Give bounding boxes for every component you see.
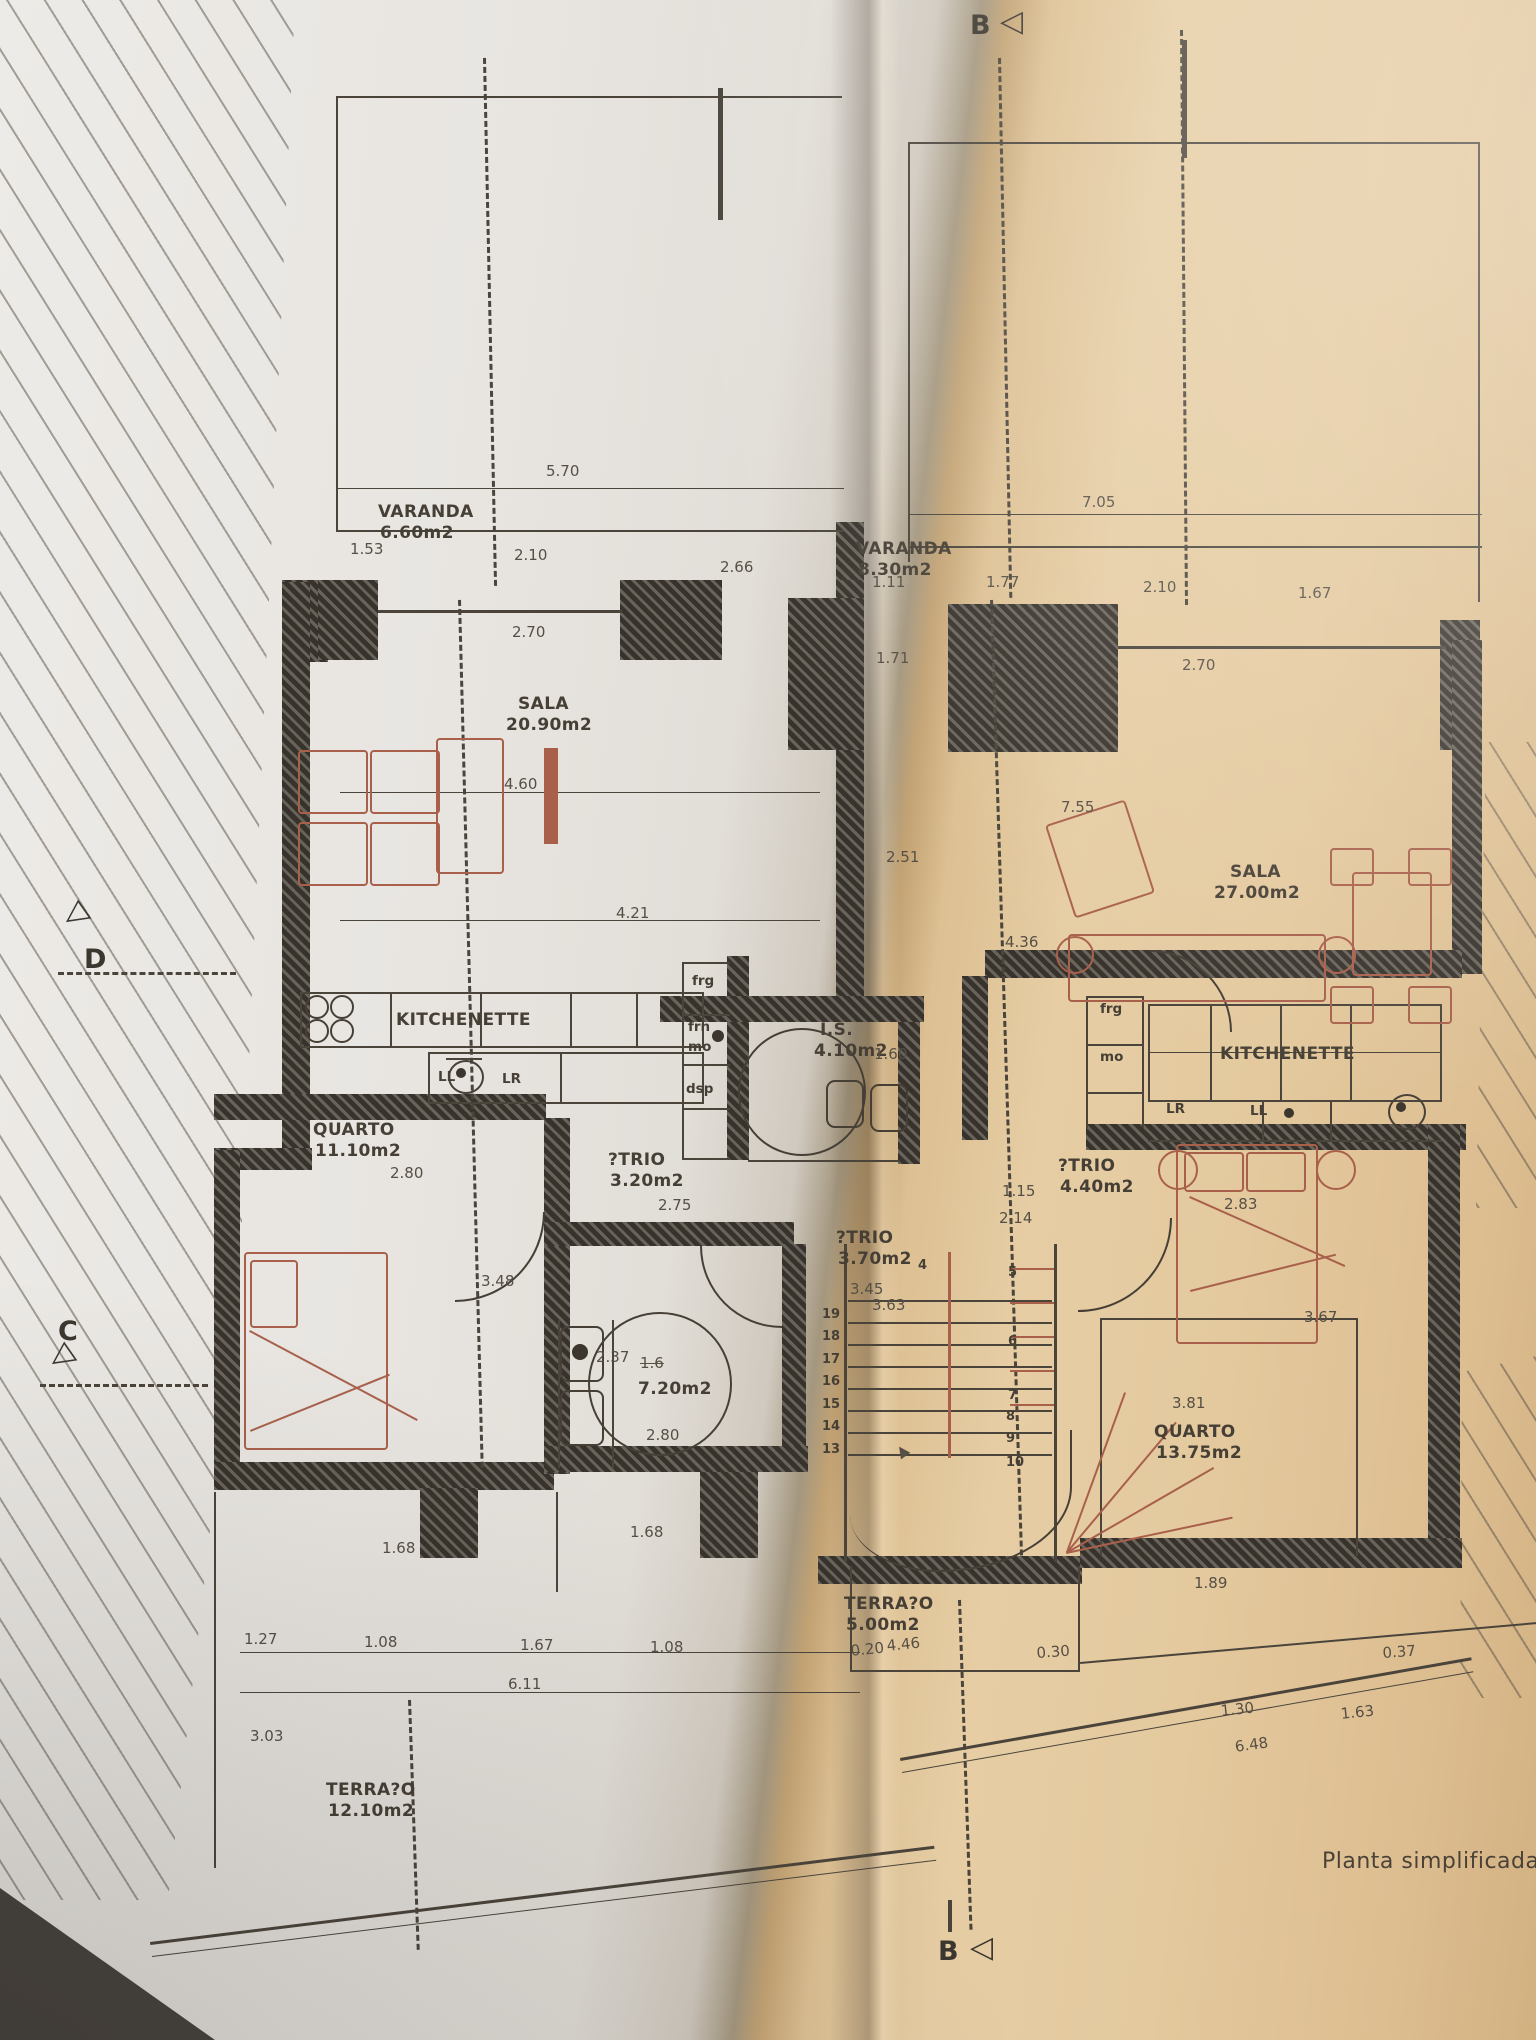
- dimension-label: 1.30: [1220, 1701, 1255, 1720]
- dimension-label: 1.60: [874, 1047, 907, 1063]
- chair-symbol: [1330, 848, 1374, 886]
- dimension-label: 6.11: [508, 1677, 541, 1693]
- room-label: VARANDA: [856, 541, 952, 559]
- plan-line: [1100, 1318, 1102, 1556]
- dimension-label: 1.89: [1194, 1576, 1227, 1592]
- stair-spoke-red: [1066, 1392, 1126, 1552]
- dimension-label: 4.21: [616, 906, 649, 922]
- plan-line: [1142, 996, 1144, 1128]
- appliance-label: frn: [688, 1020, 710, 1034]
- dimension-label: 2.37: [596, 1350, 629, 1366]
- toilet-symbol: [560, 1390, 604, 1446]
- dimension-label: 2.70: [512, 625, 545, 641]
- dimension-label: 1.53: [350, 542, 383, 558]
- tv-symbol: [544, 748, 558, 844]
- dimension-label: 6.48: [1234, 1735, 1269, 1755]
- dimension-label: 2.14: [999, 1211, 1032, 1227]
- stair-number: 19: [822, 1308, 840, 1322]
- wall-segment: [962, 976, 988, 1140]
- room-label: TERRA?O: [844, 1596, 934, 1614]
- plan-line: [1078, 1566, 1080, 1672]
- wall-segment: [214, 1462, 554, 1490]
- dimension-label: 5.70: [546, 464, 579, 480]
- section-flag-icon: ◁: [1000, 6, 1023, 38]
- sofa-arm: [1056, 936, 1094, 974]
- wall-segment: [948, 604, 1118, 752]
- room-label: KITCHENETTE: [1220, 1046, 1355, 1064]
- dimension-label: 2.51: [886, 850, 919, 866]
- plan-line: [908, 142, 910, 562]
- plan-line: [908, 514, 1482, 515]
- plan-line: [908, 142, 1480, 144]
- room-label: SALA: [1230, 864, 1281, 882]
- section-marker-d: D: [84, 946, 106, 974]
- room-area: 3.70m2: [838, 1251, 912, 1269]
- room-label: ?TRIO: [1058, 1158, 1115, 1176]
- dimension-label: 2.80: [646, 1428, 679, 1444]
- plan-line: [1148, 1140, 1442, 1142]
- plan-line: [850, 1670, 1080, 1672]
- floor-plan-photo: B ◁ B ◁ D ◁ C ◁ Planta simplificada d ▲V…: [0, 0, 1536, 2040]
- bed-post: [1316, 1150, 1356, 1190]
- section-line-c: [40, 1384, 208, 1387]
- appliance-label: mo: [1100, 1050, 1123, 1064]
- sink-symbol: [1388, 1094, 1426, 1130]
- dimension-label: 2.10: [1143, 580, 1176, 596]
- dimension-label: 3.67: [1304, 1310, 1337, 1326]
- sofa-symbol: [298, 822, 368, 886]
- plan-line: [748, 1160, 900, 1162]
- dimension-label: 1.67: [1298, 586, 1331, 602]
- section-marker-b-bottom: B: [938, 1938, 959, 1966]
- dimension-label: 2.83: [1224, 1197, 1257, 1213]
- plot-boundary-line: [900, 1657, 1472, 1761]
- wall-segment: [1080, 1538, 1462, 1568]
- room-area: 20.90m2: [506, 717, 592, 735]
- drain-dot: [1284, 1108, 1294, 1118]
- dimension-label: 3.81: [1172, 1396, 1205, 1412]
- stair-number: 4: [918, 1259, 927, 1273]
- wall-segment: [214, 1094, 546, 1120]
- dimension-label: 2.80: [390, 1166, 423, 1182]
- plot-boundary-line: [152, 1860, 936, 1957]
- section-line-b: [958, 1600, 973, 1930]
- wall-segment: [420, 1488, 478, 1558]
- dimension-label: 7.05: [1082, 495, 1115, 511]
- dimension-label: 4.60: [504, 777, 537, 793]
- stair-number: 8: [1006, 1410, 1015, 1424]
- room-label: VARANDA: [378, 504, 474, 522]
- appliance-label: frg: [692, 974, 714, 988]
- plot-boundary-line: [150, 1846, 934, 1945]
- dimension-label: 7.55: [1061, 800, 1094, 816]
- room-label: ?TRIO: [836, 1230, 893, 1248]
- plan-line: [556, 1492, 558, 1592]
- dimension-label: 1.15: [1002, 1184, 1035, 1200]
- drain-dot: [712, 1030, 724, 1042]
- plan-line: [240, 1692, 860, 1693]
- plan-line: [908, 546, 1482, 548]
- room-area: 5.00m2: [846, 1617, 920, 1635]
- dimension-label: 2.70: [1182, 658, 1215, 674]
- dimension-label: 4.36: [1005, 935, 1038, 951]
- appliance-label: dsp: [686, 1082, 713, 1096]
- plan-line: [682, 1064, 730, 1066]
- wall-segment: [700, 1472, 758, 1558]
- sofa-symbol: [298, 750, 368, 814]
- section-flag-icon: ◁: [970, 1932, 993, 1964]
- section-line-d: [58, 972, 236, 975]
- plan-line: [1118, 646, 1446, 649]
- room-area: 13.75m2: [1156, 1445, 1242, 1463]
- dimension-label: 1.08: [650, 1640, 683, 1656]
- plan-line: [390, 992, 392, 1048]
- room-label: I.S.: [820, 1022, 853, 1040]
- stair-tread-red: [1010, 1302, 1054, 1304]
- dimension-label: 2.66: [720, 560, 753, 576]
- chair-symbol: [1330, 986, 1374, 1024]
- stair-tread-red: [1010, 1404, 1054, 1406]
- plan-line: [428, 1102, 704, 1104]
- appliance-label: LL: [438, 1070, 455, 1084]
- dimension-label: 1.6: [640, 1356, 664, 1372]
- wall-segment: [788, 598, 864, 750]
- sofa-symbol: [370, 822, 440, 886]
- dimension-label: 1.08: [364, 1635, 397, 1651]
- plan-line: [1330, 1100, 1332, 1140]
- sofa-symbol: [1068, 934, 1326, 1002]
- dimension-label: 4.46: [886, 1636, 921, 1655]
- drawing-caption: Planta simplificada d: [1322, 1850, 1536, 1873]
- appliance-label: frg: [1100, 1002, 1122, 1016]
- plan-line: [1086, 1092, 1144, 1094]
- appliance-label: mo: [688, 1040, 711, 1054]
- appliance-label: LR: [502, 1072, 521, 1086]
- hob-burner-icon: [330, 995, 354, 1019]
- dimension-label: 2.10: [514, 548, 547, 564]
- stair-landing-curve: [850, 1430, 1072, 1572]
- table-symbol: [1352, 872, 1432, 976]
- stair-number: 14: [822, 1420, 840, 1434]
- toilet-symbol: [826, 1080, 864, 1128]
- armchair-symbol: [1045, 799, 1155, 918]
- dimension-label: 1.63: [1340, 1704, 1375, 1723]
- dimension-label: 2.75: [658, 1198, 691, 1214]
- plan-line: [1086, 1044, 1144, 1046]
- wall-segment: [727, 956, 749, 1160]
- sofa-symbol: [370, 750, 440, 814]
- room-area: 3.20m2: [610, 1173, 684, 1191]
- plan-line: [336, 488, 844, 489]
- dimension-label: 0.20: [850, 1641, 885, 1660]
- dimension-label: 3.63: [872, 1298, 905, 1314]
- dimension-label: 1.68: [630, 1525, 663, 1541]
- axis-dashed-line: [483, 58, 497, 586]
- plan-line: [428, 1052, 430, 1104]
- wall-segment: [318, 580, 378, 660]
- room-label: QUARTO: [313, 1122, 395, 1140]
- door-arc: [700, 1246, 782, 1328]
- appliance-label: LR: [1166, 1102, 1185, 1116]
- room-area: 11.10m2: [315, 1143, 401, 1161]
- plan-line: [948, 1900, 952, 1932]
- stair-tread-red: [1010, 1370, 1054, 1372]
- plan-line: [682, 1014, 730, 1016]
- stair-number: 7: [1008, 1389, 1017, 1403]
- plan-line: [682, 962, 684, 1160]
- plan-line: [682, 962, 730, 964]
- dimension-label: 3.48: [481, 1274, 514, 1290]
- section-line-b: [998, 58, 1012, 598]
- stair-number: 15: [822, 1398, 840, 1412]
- stair-stringer-red: [948, 1252, 951, 1458]
- plan-line: [336, 96, 338, 532]
- room-area: 7.20m2: [638, 1381, 712, 1399]
- plan-line: [340, 920, 820, 921]
- dimension-label: 1.77: [986, 575, 1019, 591]
- dimension-label: 1.27: [244, 1632, 277, 1648]
- dimension-label: 1.67: [520, 1638, 553, 1654]
- stair-number: 5: [1008, 1266, 1017, 1280]
- stair-number: 18: [822, 1330, 840, 1344]
- room-label: SALA: [518, 696, 569, 714]
- dimension-label: 0.30: [1036, 1644, 1070, 1662]
- pillow-symbol: [1246, 1152, 1306, 1192]
- stair-number: 10: [1006, 1456, 1024, 1470]
- chair-symbol: [1408, 848, 1452, 886]
- bed-post: [1158, 1150, 1198, 1190]
- stair-number: 16: [822, 1375, 840, 1389]
- plan-line: [636, 992, 638, 1048]
- plan-line: [300, 992, 302, 1048]
- room-area: 4.40m2: [1060, 1179, 1134, 1197]
- section-flag-icon: ◁: [56, 895, 93, 934]
- room-label: QUARTO: [1154, 1424, 1236, 1442]
- stair-number: 9: [1006, 1432, 1015, 1446]
- plan-line: [378, 610, 622, 613]
- stair-number: 6: [1008, 1335, 1017, 1349]
- plan-line: [560, 1052, 562, 1104]
- hob-burner-icon: [305, 1019, 329, 1043]
- fixture-dot: [572, 1344, 588, 1360]
- wall-segment: [1452, 640, 1482, 974]
- plan-line: [1356, 1318, 1358, 1556]
- plan-line: [718, 88, 723, 220]
- plan-line: [682, 1108, 730, 1110]
- dimension-label: 1.68: [382, 1541, 415, 1557]
- plan-line: [300, 992, 704, 994]
- hob-burner-icon: [305, 995, 329, 1019]
- wall-segment: [620, 580, 722, 660]
- dimension-label: 0.37: [1382, 1644, 1416, 1662]
- sofa-arm: [1318, 936, 1356, 974]
- plan-line: [300, 1046, 704, 1048]
- stair-number: 13: [822, 1443, 840, 1457]
- plan-line: [844, 1244, 847, 1562]
- plan-line: [1478, 142, 1480, 602]
- wall-segment: [782, 1244, 806, 1472]
- bidet-symbol: [870, 1084, 908, 1132]
- plan-line: [570, 992, 572, 1048]
- hob-burner-icon: [330, 1019, 354, 1043]
- dimension-label: 3.03: [250, 1729, 283, 1745]
- plan-line: [682, 1158, 730, 1160]
- plot-boundary-line: [902, 1671, 1473, 1773]
- wall-segment: [214, 1150, 240, 1470]
- stair-number: 17: [822, 1353, 840, 1367]
- plan-line: [336, 96, 842, 98]
- plan-line: [214, 1492, 216, 1868]
- room-area: 27.00m2: [1214, 885, 1300, 903]
- plan-line: [1086, 996, 1088, 1128]
- room-label: KITCHENETTE: [396, 1012, 531, 1030]
- room-label: ?TRIO: [608, 1152, 665, 1170]
- drain-dot: [1396, 1102, 1406, 1112]
- chair-symbol: [1408, 986, 1452, 1024]
- wall-segment: [544, 1222, 794, 1246]
- room-area: 6.60m2: [380, 525, 454, 543]
- wall-segment: [1428, 1124, 1460, 1568]
- drain-dot: [456, 1068, 466, 1078]
- room-label: TERRA?O: [326, 1782, 416, 1800]
- appliance-label: LL: [1250, 1104, 1267, 1118]
- door-arc: [1078, 1218, 1172, 1312]
- dimension-label: 1.11: [872, 575, 905, 591]
- sofa-symbol: [436, 738, 504, 874]
- dimension-label: 1.71: [876, 651, 909, 667]
- room-area: 12.10m2: [328, 1803, 414, 1821]
- pillow-symbol: [250, 1260, 298, 1328]
- section-marker-b-top: B: [970, 12, 991, 40]
